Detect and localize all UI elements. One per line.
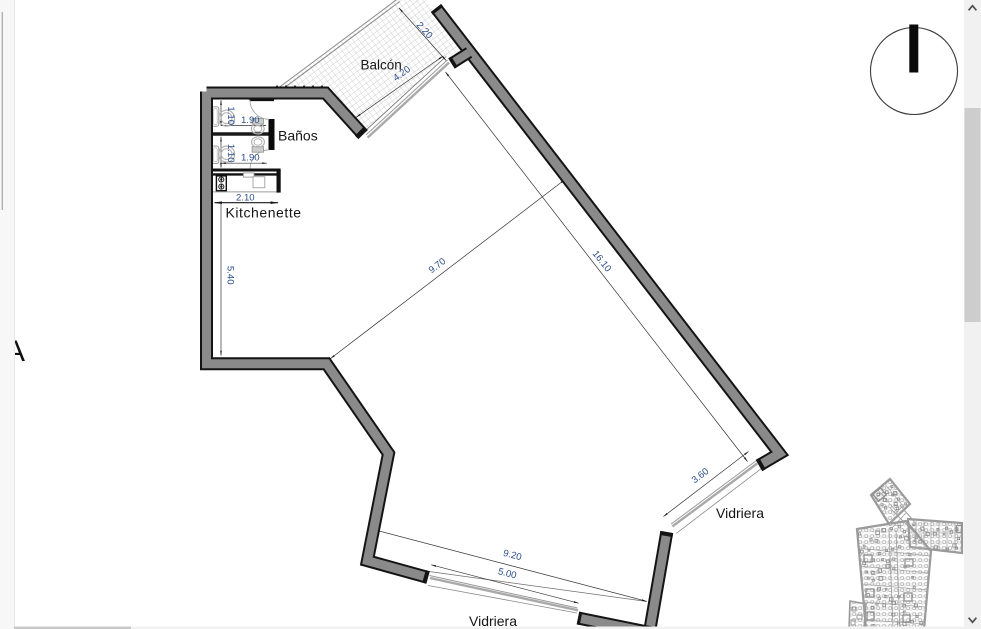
svg-text:Vidriera: Vidriera [716, 505, 764, 521]
svg-text:1.90: 1.90 [241, 115, 260, 126]
svg-text:1.10: 1.10 [225, 144, 236, 163]
svg-text:5.40: 5.40 [225, 266, 236, 285]
svg-text:Baños: Baños [278, 128, 318, 144]
svg-text:16.10: 16.10 [590, 249, 613, 275]
svg-text:Kitchenette: Kitchenette [226, 205, 302, 221]
svg-text:Balcón: Balcón [361, 58, 402, 73]
svg-text:2.10: 2.10 [236, 192, 255, 203]
svg-text:1.10: 1.10 [225, 106, 236, 125]
svg-text:1.90: 1.90 [241, 152, 260, 163]
svg-text:5.00: 5.00 [497, 566, 518, 581]
svg-text:9.20: 9.20 [502, 548, 523, 563]
svg-text:9.70: 9.70 [427, 256, 449, 276]
svg-text:3.60: 3.60 [690, 466, 712, 486]
